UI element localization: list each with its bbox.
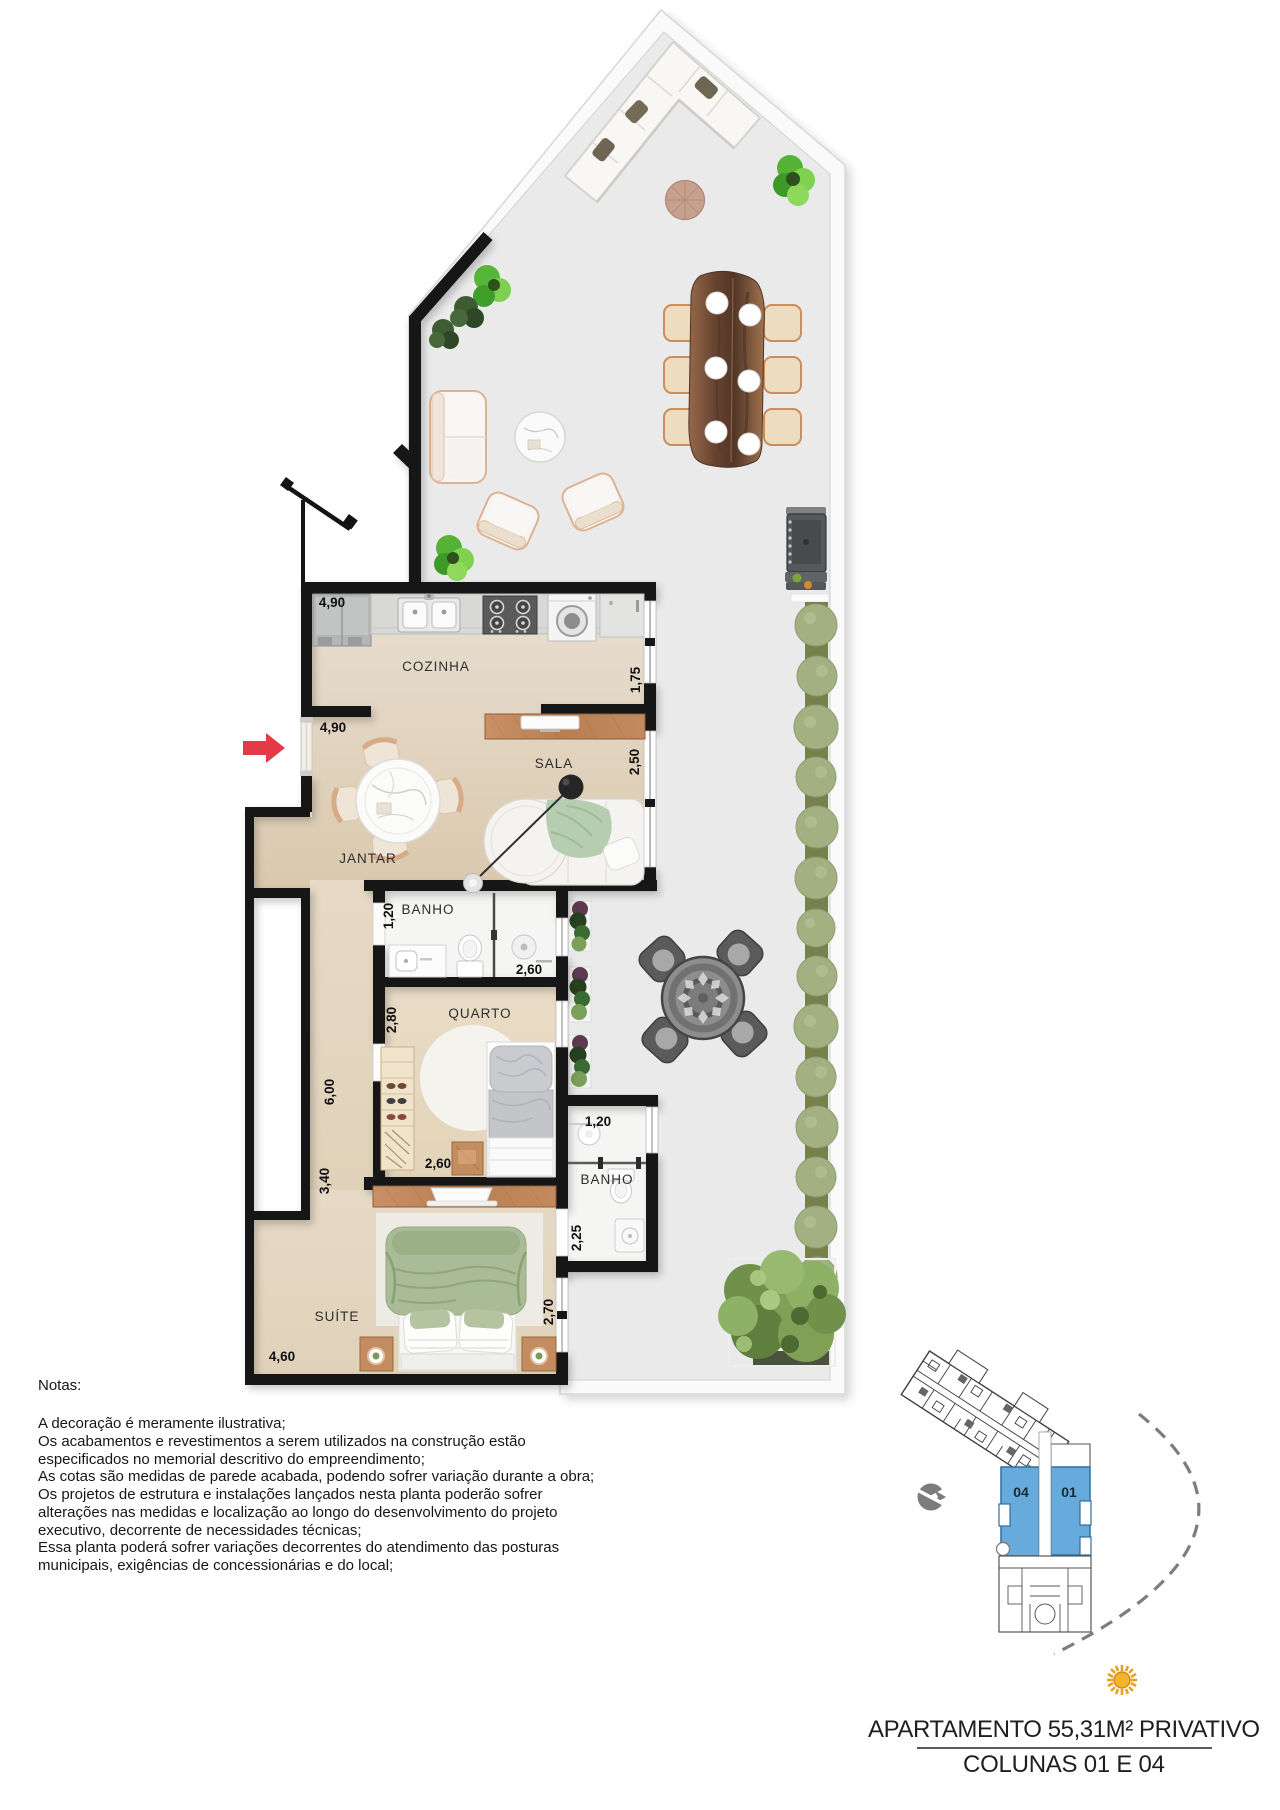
svg-text:SUÍTE: SUÍTE [315,1309,360,1324]
svg-text:JANTAR: JANTAR [339,851,397,866]
svg-text:4,90: 4,90 [320,720,346,735]
svg-text:especificados no memorial desc: especificados no memorial descritivo do … [38,1451,425,1468]
svg-text:BANHO: BANHO [580,1172,633,1187]
svg-text:2,60: 2,60 [516,962,542,977]
svg-text:04: 04 [1013,1484,1029,1500]
svg-text:3,40: 3,40 [317,1168,332,1194]
svg-text:2,80: 2,80 [384,1007,399,1033]
svg-text:4,60: 4,60 [269,1349,295,1364]
svg-text:Essa planta poderá sofrer vari: Essa planta poderá sofrer variações deco… [38,1539,559,1556]
svg-text:01: 01 [1061,1484,1077,1500]
svg-text:As cotas são medidas de parede: As cotas são medidas de parede acabada, … [38,1468,594,1485]
svg-text:2,70: 2,70 [541,1299,556,1325]
svg-text:Os acabamentos e revestimentos: Os acabamentos e revestimentos a serem u… [38,1433,526,1450]
svg-text:QUARTO: QUARTO [448,1006,511,1021]
svg-text:Os projetos de estrutura e ins: Os projetos de estrutura e instalações l… [38,1486,542,1503]
svg-text:1,20: 1,20 [381,903,396,929]
svg-text:A decoração é meramente ilustr: A decoração é meramente ilustrativa; [38,1415,286,1432]
svg-text:alterações nas medidas e local: alterações nas medidas e localização ao … [38,1504,558,1521]
svg-text:BANHO: BANHO [401,902,454,917]
svg-text:COLUNAS 01 E 04: COLUNAS 01 E 04 [963,1751,1165,1778]
svg-text:2,50: 2,50 [627,749,642,775]
svg-text:COZINHA: COZINHA [402,659,470,674]
svg-text:2,25: 2,25 [569,1224,584,1251]
svg-text:SALA: SALA [535,756,574,771]
svg-text:Notas:: Notas: [38,1377,81,1394]
svg-text:1,20: 1,20 [585,1114,611,1129]
svg-text:1,75: 1,75 [628,666,643,693]
svg-text:2,60: 2,60 [425,1156,451,1171]
svg-text:4,90: 4,90 [319,595,345,610]
svg-text:executivo, decorrente de neces: executivo, decorrente de necessidades té… [38,1522,362,1539]
svg-text:6,00: 6,00 [322,1079,337,1105]
svg-text:municipais, exigências de conc: municipais, exigências de concessionária… [38,1557,393,1574]
svg-text:APARTAMENTO 55,31M² PRIVATIVO: APARTAMENTO 55,31M² PRIVATIVO [868,1716,1260,1743]
